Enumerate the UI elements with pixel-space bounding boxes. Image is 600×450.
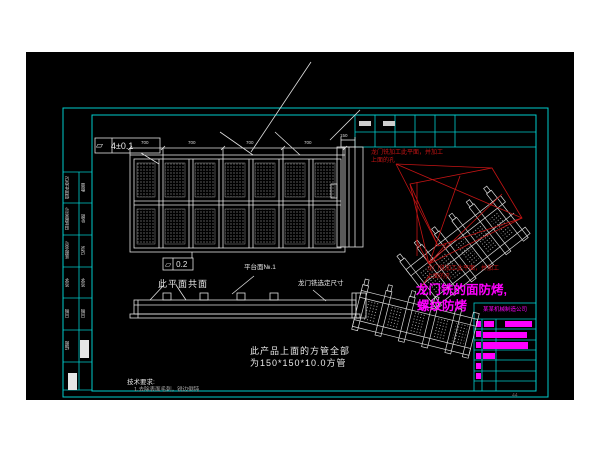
note-platform-plate: 平台面№.1 [244,265,276,272]
tolerance-value: 4±0.1 [111,141,133,151]
revision-row-note: 数量 [81,174,94,201]
revision-row-label: 旧底图总号 [65,205,78,232]
tech-req-title: 技术要求: [127,380,155,387]
flatness-icon: ⏥ [165,260,171,269]
magenta-note-1: 龙门铣的面防烤, [416,284,507,297]
revision-row-note: 记录 [81,237,94,264]
red-note-upper-2: 上面的孔 [371,158,395,164]
tech-req-item: 1.去除表面毛刺，锐边倒钝 [134,388,199,394]
red-note-lower-2: 上面的孔 [427,274,451,280]
revision-row-note: 签字 [81,269,94,296]
note-square-tube-1: 此产品上面的方管全部 [250,347,350,356]
flatness-tolerance-frame-top: ⏥ 4±0.1 [96,139,133,152]
magenta-note-2: 螺纹防烤 [417,300,467,313]
revision-row-label: 借用件登记 [65,174,78,201]
dimension-label: 700 [304,141,312,146]
revision-row-label: 底图总号 [65,237,78,264]
header-table-grid [355,115,536,147]
red-note-upper-1: 龙门铣加工此平面，并加工 [371,150,443,156]
flatness-tolerance-frame-mid: ⏥ 0.2 [165,260,187,269]
revision-row-label: 日期 [65,300,78,327]
plan-view [95,62,360,252]
dimension-label: 700 [188,141,196,146]
cad-viewport[interactable]: ⏥ 4±0.1 ⏥ 0.2 此平面共面 平台面№.1 龙门铣选定尺寸 此产品上面… [26,52,574,400]
red-note-lower-1: 龙门铣加工此平面，并加工 [427,266,499,272]
revision-row-note: 日期 [81,300,94,327]
revision-row-label: 签字 [65,269,78,296]
dimension-label: 700 [141,141,149,146]
footer-mark: 44 [512,394,518,399]
side-view [331,137,363,247]
note-coplanar: 此平面共面 [158,280,208,289]
note-square-tube-2: 为150*150*10.0方管 [250,359,347,368]
flatness-icon: ⏥ [96,140,103,151]
page: { "window": { "background": "#ffffff", "… [0,0,600,450]
note-gantry-mill-size: 龙门铣选定尺寸 [298,281,344,288]
dimension-label-side: 150 [340,134,348,139]
revision-row-note: 处数 [81,205,94,232]
revision-row-label: 描图 [65,332,78,359]
tolerance-value: 0.2 [176,260,187,269]
title-block-company: 某某机械制造公司 [475,308,535,314]
dimension-label: 700 [246,141,254,146]
